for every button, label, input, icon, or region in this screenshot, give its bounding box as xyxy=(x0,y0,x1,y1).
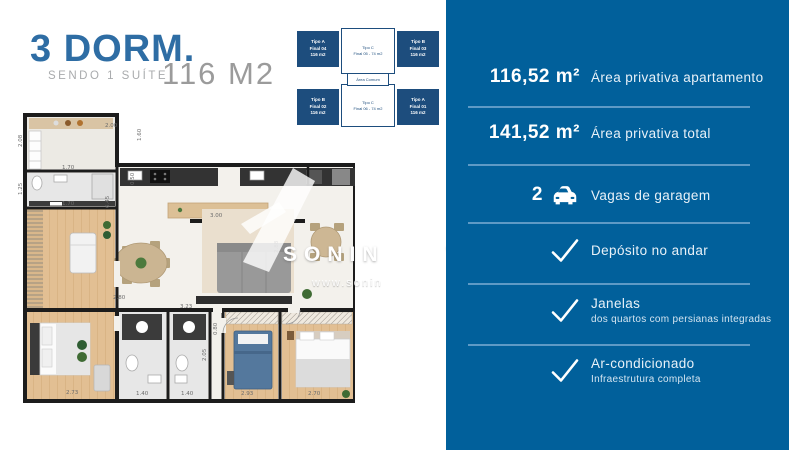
svg-text:2.05: 2.05 xyxy=(202,348,208,361)
ac-label: Ar-condicionado Infraestrutura completa xyxy=(591,356,701,385)
svg-text:6.45: 6.45 xyxy=(105,195,111,208)
svg-text:2.70: 2.70 xyxy=(308,391,321,397)
windows-sublabel: dos quartos com persianas integradas xyxy=(591,314,771,325)
svg-text:2.08: 2.08 xyxy=(18,134,24,147)
keyplan-unit-top-right: Tipo B Final 03 116 m2 xyxy=(396,30,440,68)
unit-type: Tipo A xyxy=(297,39,339,46)
building-key-plan: Tipo A Final 04 116 m2 Tipo B Final 03 1… xyxy=(296,28,438,125)
keyplan-common-area: Área Comum xyxy=(347,73,389,86)
windows-title: Janelas xyxy=(591,296,640,311)
unit-final: Final 01 xyxy=(397,104,439,111)
spec-row-private-area: 116,52 m² Área privativa apartamento xyxy=(470,49,781,105)
spec-row-ac: Ar-condicionado Infraestrutura completa xyxy=(470,342,781,398)
svg-text:3.23: 3.23 xyxy=(180,304,193,310)
keyplan-unit-top-left: Tipo A Final 04 116 m2 xyxy=(296,30,340,68)
svg-text:2.80: 2.80 xyxy=(113,295,126,301)
unit-type: Tipo A xyxy=(397,97,439,104)
flyer: 3 DORM. SENDO 1 SUÍTE 116 M2 Tipo A Fina… xyxy=(0,0,789,450)
svg-text:1.40: 1.40 xyxy=(181,391,194,397)
floor-plan: 2.00 1.60 2.08 1.70 1.25 1.70 6.45 0.50 … xyxy=(10,113,355,403)
parking-label: Vagas de garagem xyxy=(591,188,710,203)
svg-text:2.73: 2.73 xyxy=(66,390,79,396)
svg-text:2.00: 2.00 xyxy=(105,123,118,129)
check-icon xyxy=(550,357,580,384)
svg-text:1.60: 1.60 xyxy=(137,128,143,141)
spec-panel: 116,52 m² Área privativa apartamento 141… xyxy=(446,0,789,450)
svg-text:2.88: 2.88 xyxy=(274,240,280,253)
svg-text:1.70: 1.70 xyxy=(62,201,75,207)
common-area-label: Área Comum xyxy=(348,77,388,83)
unit-final: Final 06 - 74 m2 xyxy=(342,106,394,112)
spec-row-parking: 2 Vagas de garagem xyxy=(470,167,781,223)
total-area-value: 141,52 m² xyxy=(489,122,580,144)
bedroom-2 xyxy=(226,312,278,389)
unit-area: 116 m2 xyxy=(397,110,439,117)
check-icon xyxy=(550,237,580,264)
unit-area: 116 m2 xyxy=(297,52,339,59)
unit-final: Final 04 xyxy=(297,46,339,53)
total-area-label: Área privativa total xyxy=(591,126,711,141)
private-area-value: 116,52 m² xyxy=(490,66,580,88)
page-subtitle: SENDO 1 SUÍTE xyxy=(48,70,168,82)
ac-title: Ar-condicionado xyxy=(591,356,695,371)
spec-row-total-area: 141,52 m² Área privativa total xyxy=(470,105,781,161)
svg-text:0.50: 0.50 xyxy=(130,172,136,185)
check-icon xyxy=(550,297,580,324)
windows-label: Janelas dos quartos com persianas integr… xyxy=(591,296,771,325)
svg-text:1.25: 1.25 xyxy=(18,182,24,195)
svg-text:0.80: 0.80 xyxy=(213,322,219,335)
spec-row-windows: Janelas dos quartos com persianas integr… xyxy=(470,282,781,338)
keyplan-unit-center-top: Tipo C Final 05 - 74 m2 xyxy=(341,28,395,74)
parking-count: 2 xyxy=(532,184,543,206)
living-room xyxy=(196,209,294,304)
storage-label: Depósito no andar xyxy=(591,243,708,258)
unit-final: Final 05 - 74 m2 xyxy=(342,51,394,57)
svg-text:2.93: 2.93 xyxy=(241,391,254,397)
spec-row-storage: Depósito no andar xyxy=(470,222,781,278)
area-headline: 116 M2 xyxy=(162,56,275,92)
ac-sublabel: Infraestrutura completa xyxy=(591,374,701,385)
unit-type: Tipo B xyxy=(397,39,439,46)
svg-text:3.00: 3.00 xyxy=(210,213,223,219)
private-area-label: Área privativa apartamento xyxy=(591,70,764,85)
divider xyxy=(468,164,750,166)
unit-area: 116 m2 xyxy=(397,52,439,59)
unit-final: Final 02 xyxy=(297,104,339,111)
svg-text:1.70: 1.70 xyxy=(62,165,75,171)
unit-type: Tipo B xyxy=(297,97,339,104)
svg-text:1.40: 1.40 xyxy=(136,391,149,397)
unit-final: Final 03 xyxy=(397,46,439,53)
car-icon xyxy=(550,185,580,206)
keyplan-unit-bottom-right: Tipo A Final 01 116 m2 xyxy=(396,88,440,126)
